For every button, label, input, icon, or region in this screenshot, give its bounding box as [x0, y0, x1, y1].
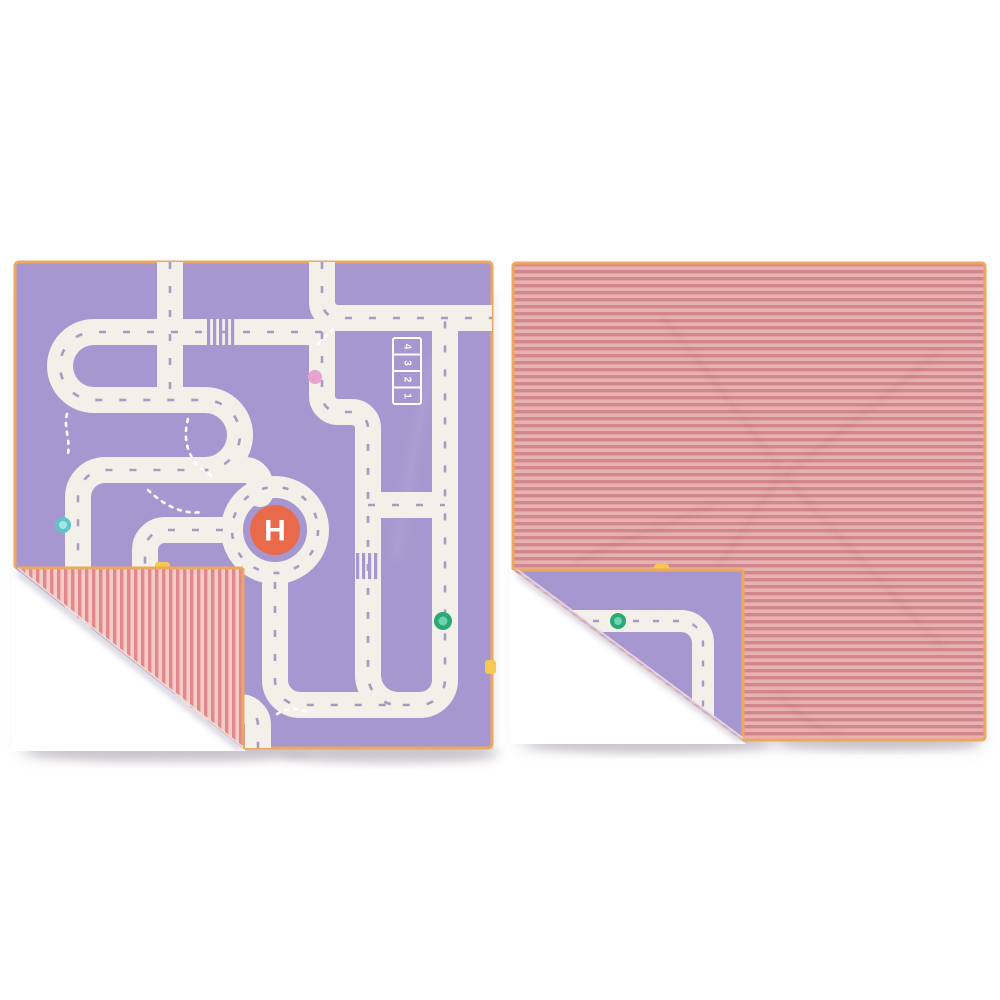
teal-marker-dot-inner [59, 521, 67, 529]
right-mat [510, 263, 985, 744]
pink-marker-dot [308, 370, 322, 384]
helipad-label: H [264, 515, 286, 548]
green-marker-dot-inner [439, 617, 448, 626]
parking-number: 1 [402, 393, 413, 399]
fold-green-marker-dot-inner [614, 617, 622, 625]
right-fold [510, 564, 746, 744]
helipad: H [250, 505, 300, 555]
product-photo: H 4 3 2 1 [0, 0, 1000, 1000]
parking-number: 2 [402, 377, 413, 383]
hanging-loop-tab [485, 660, 496, 674]
parking-number: 3 [402, 360, 413, 366]
parking-number: 4 [402, 344, 413, 350]
left-mat: H 4 3 2 1 [12, 262, 496, 751]
photo-canvas: H 4 3 2 1 [0, 0, 1000, 1000]
left-fold [12, 562, 246, 751]
